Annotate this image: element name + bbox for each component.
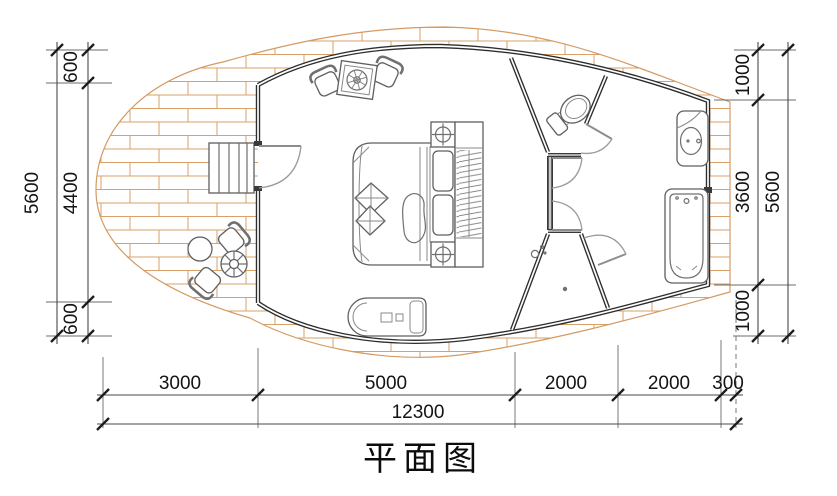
dim-label: 600 bbox=[61, 51, 82, 83]
dim-label: 3000 bbox=[159, 373, 201, 394]
entry-stairs bbox=[209, 143, 254, 193]
sink-icon bbox=[677, 111, 708, 166]
dim-label: 5000 bbox=[365, 373, 407, 394]
dim-label-overall: 12300 bbox=[392, 402, 445, 423]
wardrobe bbox=[455, 122, 483, 267]
floor-plan-canvas: 600 4400 600 5600 1000 3600 1000 5600 30… bbox=[0, 0, 837, 496]
dim-label: 2000 bbox=[648, 373, 690, 394]
dim-label: 600 bbox=[61, 303, 82, 335]
nightstand-top bbox=[431, 122, 455, 147]
dim-label: 3600 bbox=[733, 171, 754, 213]
floor-plan-page: 600 4400 600 5600 1000 3600 1000 5600 30… bbox=[0, 0, 837, 496]
nightstand-bottom bbox=[431, 242, 455, 267]
outdoor-round-table bbox=[188, 237, 212, 261]
dim-label: 300 bbox=[712, 373, 744, 394]
chaise-lounge bbox=[348, 298, 426, 336]
drawing-title: 平面图 bbox=[363, 440, 483, 478]
dim-label: 1000 bbox=[733, 54, 754, 96]
table-icon bbox=[337, 61, 377, 100]
dim-label: 2000 bbox=[545, 373, 587, 394]
outdoor-umbrella-table-icon bbox=[221, 251, 247, 277]
dim-label: 4400 bbox=[61, 172, 82, 214]
floor-drain-icon bbox=[563, 287, 567, 291]
bathtub-icon bbox=[665, 189, 708, 283]
dim-label-overall: 5600 bbox=[22, 172, 43, 214]
door-jamb bbox=[254, 186, 262, 191]
dim-label-overall: 5600 bbox=[763, 171, 784, 213]
